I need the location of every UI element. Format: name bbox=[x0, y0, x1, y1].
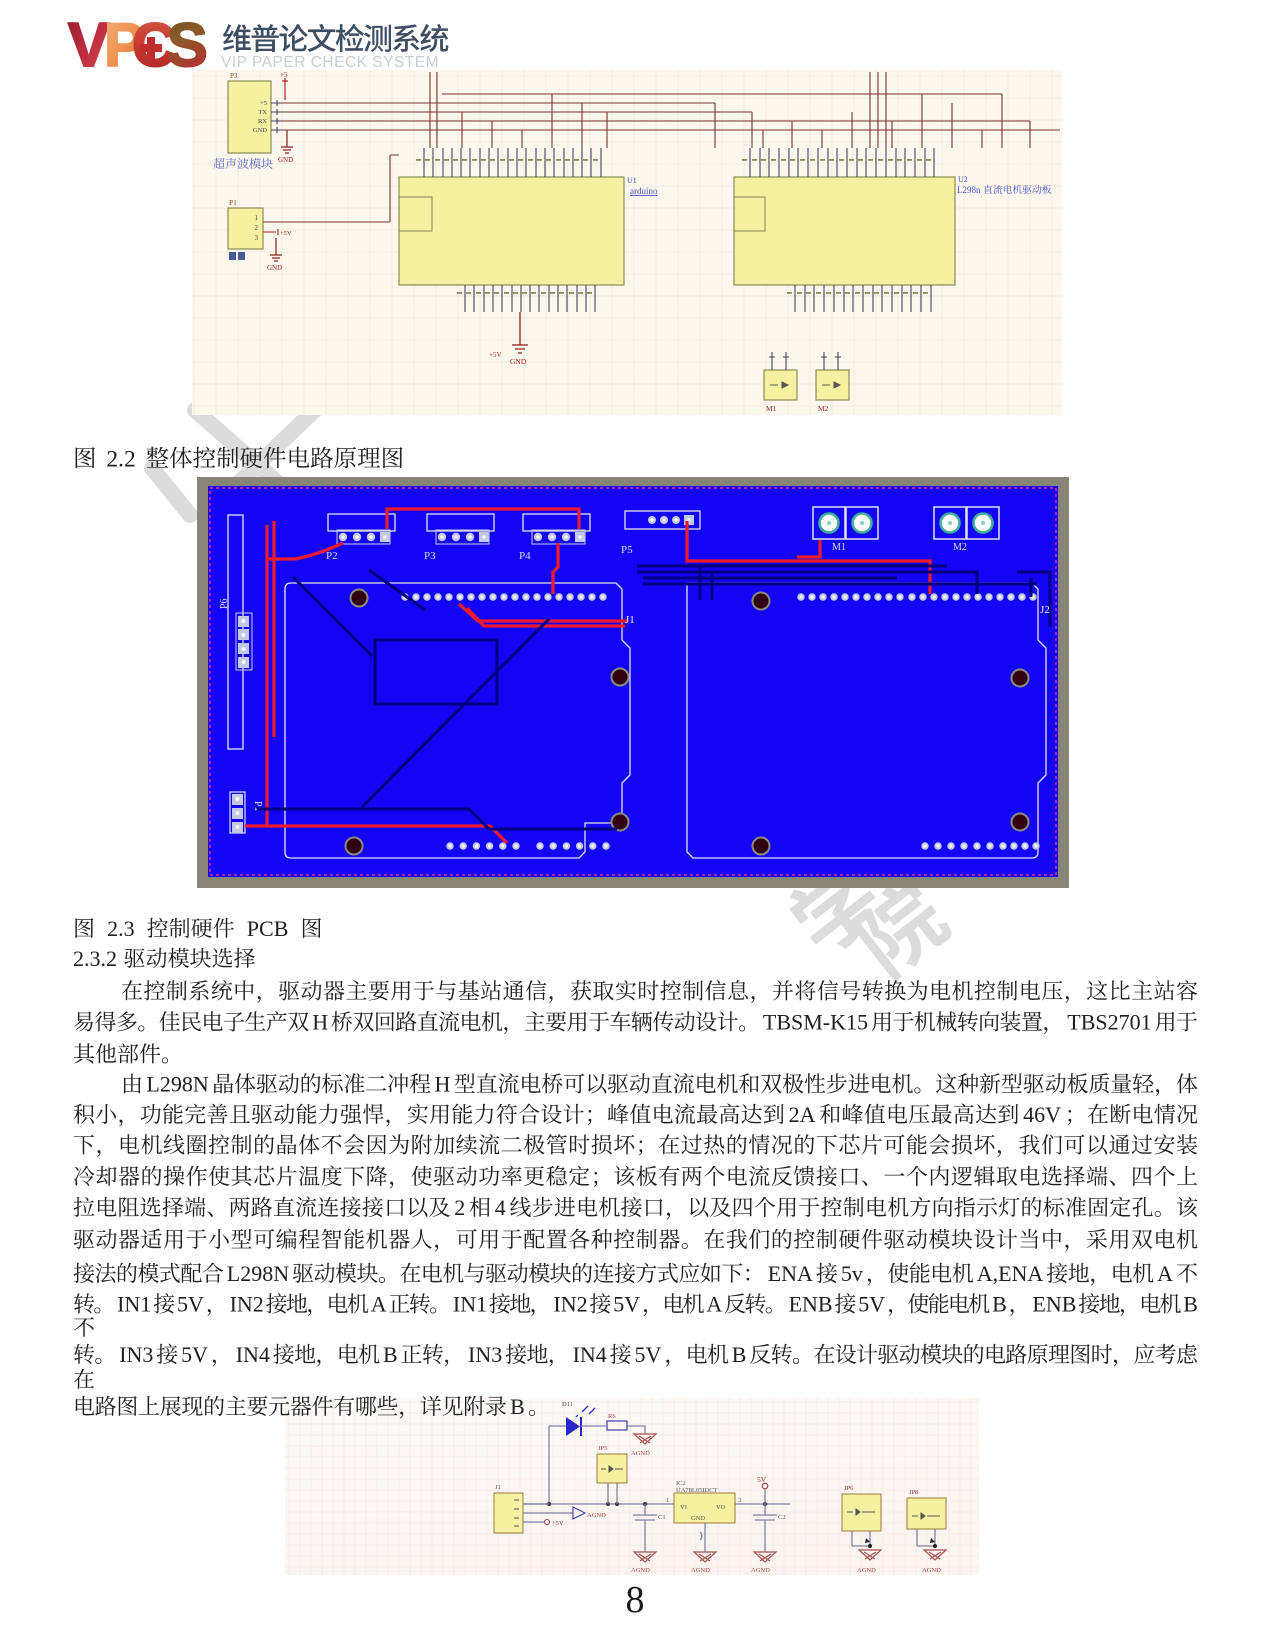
svg-text:IN1: IN1 bbox=[117, 1292, 151, 1317]
svg-text:B: B bbox=[510, 1394, 525, 1419]
svg-text:4: 4 bbox=[495, 1195, 506, 1220]
svg-text:IN2: IN2 bbox=[230, 1292, 264, 1317]
svg-text:A: A bbox=[1157, 1261, 1173, 1286]
svg-text:IN1: IN1 bbox=[453, 1292, 487, 1317]
svg-text:IN4: IN4 bbox=[573, 1342, 607, 1367]
svg-text:5v: 5v bbox=[841, 1261, 863, 1286]
svg-text:B: B bbox=[992, 1292, 1007, 1317]
svg-text:5V: 5V bbox=[177, 1292, 204, 1317]
svg-text:2.2: 2.2 bbox=[106, 446, 135, 472]
svg-text:IN4: IN4 bbox=[236, 1342, 270, 1367]
svg-text:TBSM-K15: TBSM-K15 bbox=[763, 1010, 868, 1035]
svg-text:A: A bbox=[706, 1292, 722, 1317]
svg-text:ENB: ENB bbox=[1032, 1292, 1076, 1317]
svg-text:5V: 5V bbox=[858, 1292, 885, 1317]
svg-text:A: A bbox=[371, 1292, 387, 1317]
svg-text:IN3: IN3 bbox=[119, 1342, 153, 1367]
svg-text:PCB: PCB bbox=[247, 916, 289, 941]
svg-text:IN2: IN2 bbox=[553, 1292, 587, 1317]
svg-text:H: H bbox=[435, 1072, 451, 1097]
svg-text:ENB: ENB bbox=[789, 1292, 833, 1317]
svg-text:H: H bbox=[312, 1010, 328, 1035]
svg-text:B: B bbox=[383, 1342, 398, 1367]
svg-text:L298N: L298N bbox=[227, 1261, 289, 1286]
svg-text:5V: 5V bbox=[635, 1342, 662, 1367]
svg-text:2.3.2: 2.3.2 bbox=[73, 946, 117, 971]
svg-text:A,ENA: A,ENA bbox=[977, 1261, 1044, 1286]
svg-text:2: 2 bbox=[454, 1195, 465, 1220]
svg-text:5V: 5V bbox=[613, 1292, 640, 1317]
svg-text:2A: 2A bbox=[789, 1102, 816, 1127]
svg-text:L298N: L298N bbox=[146, 1072, 208, 1097]
svg-text:ENA: ENA bbox=[768, 1261, 813, 1286]
svg-text:TBS2701: TBS2701 bbox=[1067, 1010, 1151, 1035]
svg-text:46V: 46V bbox=[1023, 1102, 1061, 1127]
svg-text:2.3: 2.3 bbox=[107, 916, 135, 941]
svg-text:IN3: IN3 bbox=[468, 1342, 502, 1367]
svg-text:B: B bbox=[732, 1342, 747, 1367]
svg-text:B: B bbox=[1183, 1292, 1198, 1317]
svg-text:5V: 5V bbox=[181, 1342, 208, 1367]
